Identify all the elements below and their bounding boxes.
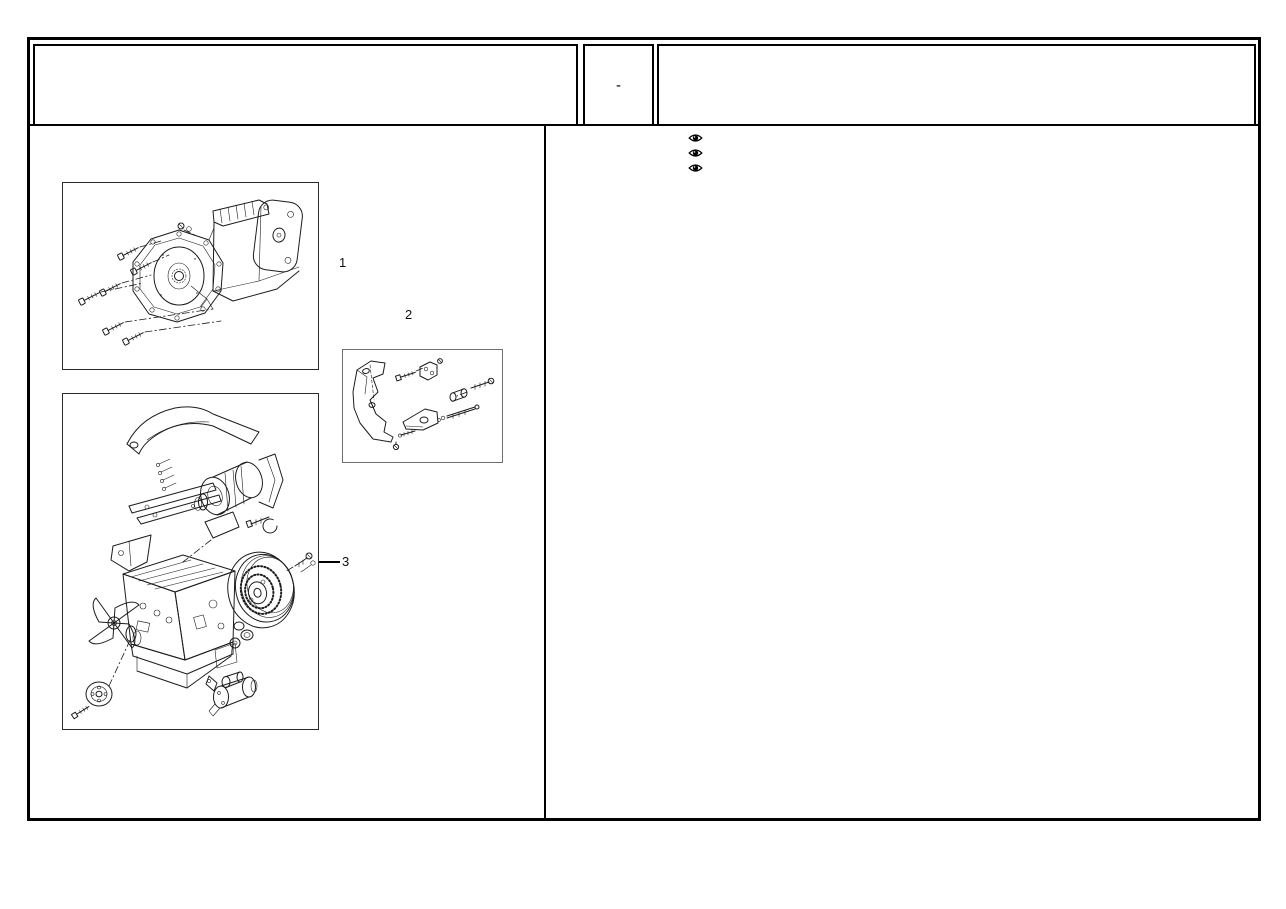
eye-icon[interactable] bbox=[688, 133, 703, 143]
catalog-page: - bbox=[0, 0, 1286, 909]
eye-icon[interactable] bbox=[688, 148, 703, 158]
engine-with-alternator-drawing bbox=[63, 394, 318, 729]
header-left-cell bbox=[33, 44, 578, 126]
header-code-cell: - bbox=[583, 44, 654, 126]
callout-2[interactable]: 2 bbox=[405, 308, 412, 321]
figure-3-panel[interactable] bbox=[62, 393, 319, 730]
header-code-text: - bbox=[616, 77, 621, 94]
gearbox-drawing bbox=[63, 183, 318, 369]
figure-2-panel[interactable] bbox=[342, 349, 503, 463]
header-title-cell bbox=[657, 44, 1256, 126]
callout-1[interactable]: 1 bbox=[339, 256, 346, 269]
engine-mount-bracket-drawing bbox=[343, 350, 502, 462]
callout-2-label: 2 bbox=[405, 307, 412, 322]
eye-icon[interactable] bbox=[688, 163, 703, 173]
callout-3[interactable]: 3 bbox=[342, 555, 349, 568]
visibility-toolbar bbox=[688, 133, 703, 173]
callout-3-connector bbox=[319, 561, 340, 563]
callout-3-label: 3 bbox=[342, 554, 349, 569]
callout-1-label: 1 bbox=[339, 255, 346, 270]
header-divider bbox=[27, 124, 1261, 126]
content-vertical-divider bbox=[544, 126, 546, 820]
figure-1-panel[interactable] bbox=[62, 182, 319, 370]
